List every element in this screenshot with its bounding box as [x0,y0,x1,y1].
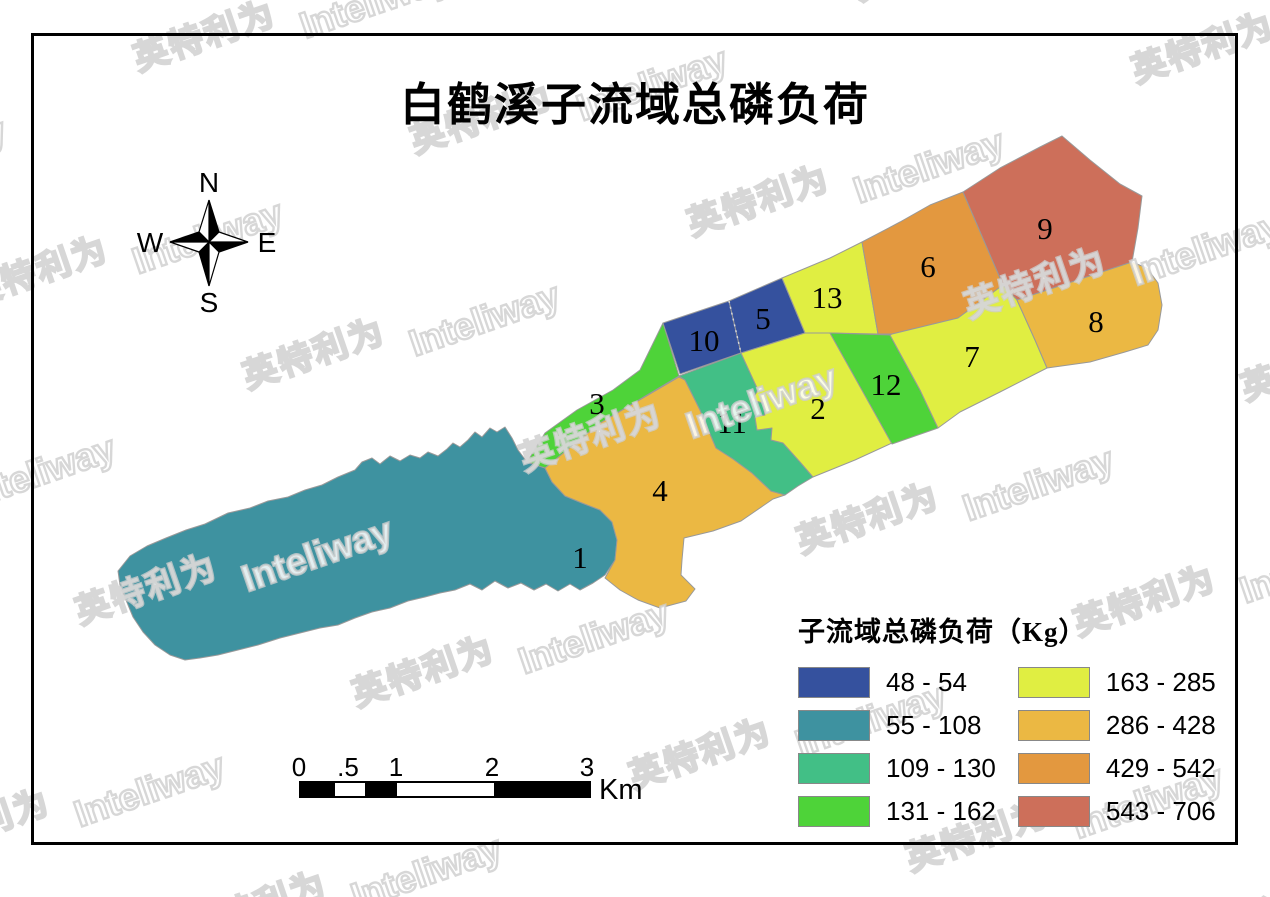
legend-swatch [1018,710,1090,741]
legend: 子流域总磷负荷（Kg） 48 - 5455 - 108109 - 130131 … [798,610,1216,827]
scalebar-tick-label: 0 [292,752,306,783]
legend-range-label: 429 - 542 [1106,753,1216,784]
legend-swatch [1018,753,1090,784]
scalebar-tick-label: 1 [389,752,403,783]
legend-swatch [798,710,870,741]
scalebar-unit: Km [599,774,643,807]
scalebar-tick-label: 2 [485,752,499,783]
legend-range-label: 55 - 108 [886,710,981,741]
legend-item: 286 - 428 [1018,710,1216,741]
legend-item: 429 - 542 [1018,753,1216,784]
legend-col-2: 163 - 285286 - 428429 - 542543 - 706 [1018,667,1216,827]
compass-west-label: W [137,227,164,258]
scalebar-tick-label: 3 [580,752,594,783]
compass-north-label: N [199,167,219,198]
compass-east-label: E [258,227,277,258]
legend-columns: 48 - 5455 - 108109 - 130131 - 162 163 - … [798,667,1216,827]
legend-item: 48 - 54 [798,667,996,698]
map-document: 1 2 3 4 5 6 7 8 9 10 11 12 13 英特利为Inteli… [0,0,1270,897]
compass-south-label: S [200,287,219,318]
legend-swatch [798,753,870,784]
scalebar-segment [494,783,589,796]
legend-swatch [1018,667,1090,698]
legend-range-label: 131 - 162 [886,796,996,827]
legend-swatch [798,667,870,698]
legend-item: 543 - 706 [1018,796,1216,827]
legend-swatch [1018,796,1090,827]
legend-col-1: 48 - 5455 - 108109 - 130131 - 162 [798,667,996,827]
legend-item: 55 - 108 [798,710,996,741]
scalebar-segment [397,783,494,796]
legend-range-label: 109 - 130 [886,753,996,784]
scalebar-segment [301,783,335,796]
legend-item: 163 - 285 [1018,667,1216,698]
scalebar-segment [335,783,365,796]
legend-range-label: 286 - 428 [1106,710,1216,741]
scalebar-tick-label: .5 [337,752,359,783]
legend-range-label: 163 - 285 [1106,667,1216,698]
legend-range-label: 543 - 706 [1106,796,1216,827]
legend-range-label: 48 - 54 [886,667,967,698]
legend-swatch [798,796,870,827]
legend-item: 109 - 130 [798,753,996,784]
scalebar-bar [299,781,591,798]
scalebar: 0 .5 1 2 3 Km [299,752,649,802]
legend-title: 子流域总磷负荷（Kg） [798,610,1216,649]
legend-item: 131 - 162 [798,796,996,827]
scalebar-segment [365,783,397,796]
